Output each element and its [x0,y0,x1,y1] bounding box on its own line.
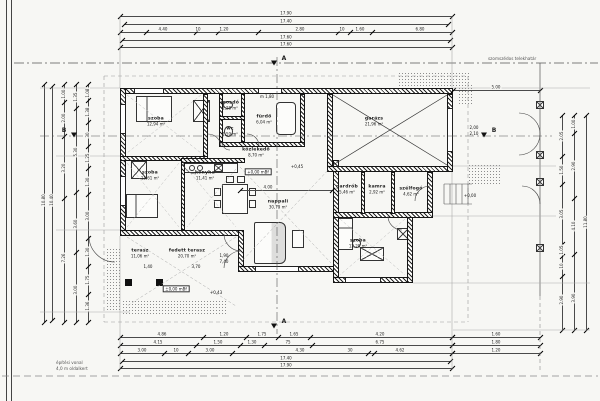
dimension-value: 1.75 [257,333,268,337]
door-swing-arc [519,134,540,155]
side-yard-text: 4,0 m oldalkert [56,366,88,372]
room-label-fedett-terasz: fedett terasz20,70 m² [169,250,205,259]
room-area: 1,28 m² [221,106,239,110]
section-marker-letter: B [492,128,497,134]
section-marker-triangle [271,61,277,66]
dimension-value: 1.00 [572,119,576,130]
door-swing-arc [519,113,540,134]
dimension-value: 1.20 [491,349,502,353]
dimension-value: 4.62 [395,349,406,353]
dimension-value: 10 [172,349,179,353]
level-note: 1,90 [220,254,229,258]
door-swing-arc [208,134,221,147]
dimension-value: 2.05 [560,131,564,142]
door-swing-arc [89,236,115,262]
room-area: 20,70 m² [169,254,205,258]
construction-line [127,237,236,306]
level-note: ±0,00 mBf [163,285,190,292]
section-marker-letter: A [282,56,287,62]
room-label-wc: wc1,59 m² [222,128,238,137]
dimension-value: 75 [284,341,291,345]
dimension-value: 1.75 [86,275,90,286]
dimension-value: 1.30 [86,247,90,258]
dimension-value: 4.30 [295,349,306,353]
building-line-label: építési vonal 4,0 m oldalkert [56,360,88,373]
dimension-value: 11.80 [584,215,588,228]
dimension-value: 3.20 [62,163,66,174]
dimension-value: 1.08 [86,88,90,99]
dimension-value: 3.00 [86,211,90,222]
section-marker-letter: B [62,128,67,134]
section-marker-letter: A [282,319,287,325]
room-area: 30,79 m² [268,205,289,209]
room-label-garázs: garázs21,96 m² [365,118,383,127]
dimension-value: 3.00 [74,285,78,296]
site-boundary-label: szomszédos telekhatár [488,56,536,62]
level-note: +0,45 [291,165,303,169]
section-marker-triangle [71,133,77,138]
dimension-value: 4.10 [572,221,576,232]
level-note: 2,10 [470,132,479,136]
dimension-value: 17.90 [279,12,292,16]
dimension-value: 17.90 [279,364,292,368]
room-area: 12,28 m² [349,244,367,248]
level-note: +0,00 [464,194,476,198]
level-note: +0,00 mBf [245,168,272,175]
room-label-szoba: szoba12,94 m² [147,118,165,127]
dimension-value: 17.40 [279,357,292,361]
dimension-value: 4.15 [153,341,164,345]
room-area: 1,59 m² [222,132,238,136]
room-area: 8,70 m² [242,153,270,157]
room-label-nappali: nappali30,79 m² [268,201,289,210]
dimension-value: 1.30 [86,177,90,188]
door-swing-arc [224,234,241,251]
room-label-szoba: szoba13,61 m² [141,172,159,181]
dimension-value: 3.90 [572,293,576,304]
dimension-value: 6.80 [415,28,426,32]
section-marker-triangle [481,133,487,138]
dimension-value: 1.25 [86,153,90,164]
room-label-kamra: kamra2,92 m² [368,186,385,195]
level-note: 1,40 [144,265,153,269]
room-area: 4,62 m² [399,192,422,196]
dimension-value: 10.80 [42,193,46,206]
room-label-terasz: terasz11,06 m² [131,250,149,259]
room-area: 21,96 m² [365,122,383,126]
room-label-konyha: konyha11,41 m² [195,172,215,181]
dimension-value: 5.00 [491,86,502,90]
room-area: 2,92 m² [368,190,385,194]
dimension-value: 2.00 [62,113,66,124]
room-area: 11,06 m² [131,254,149,258]
door-swing-arc [388,216,402,230]
drawing-sheet: szomszédos telekhatár építési vonal 4,0 … [0,0,600,401]
dimension-value: 1.05 [560,245,564,256]
level-note: 7,40 [220,260,229,264]
dimension-value: 5.30 [74,147,78,158]
room-area: 12,94 m² [147,122,165,126]
door-swing-arc [222,142,230,150]
room-label-gardrób: gardrób5,46 m² [336,186,358,195]
level-note: 3,70 [192,265,201,269]
dimension-value: 2.90 [560,295,564,306]
dimension-value: 10 [560,262,564,269]
room-label-közlekedő: közlekedő8,70 m² [242,149,270,158]
dimension-value: 1.36 [86,301,90,312]
dimension-value: 3.00 [205,349,216,353]
dimension-value: 1.30 [247,341,258,345]
dimension-value: 1.60 [355,28,366,32]
dimension-value: 4.20 [375,333,386,337]
dimension-value: 17.60 [279,36,292,40]
dimension-value: 1.35 [74,92,78,103]
construction-line [127,237,236,306]
dimension-value: 1.80 [491,341,502,345]
room-label-mosdó: mosdó1,28 m² [221,102,239,111]
level-note: m 1,80 [260,95,274,99]
dimension-value: 4.00 [263,186,274,190]
section-marker-triangle [271,324,277,329]
dimension-value: 30 [86,131,90,138]
dimension-value: 1.50 [213,341,224,345]
dimension-value: 1.65 [289,333,300,337]
dimension-value: 1.20 [219,28,230,32]
room-area: 13,61 m² [141,176,159,180]
dimension-value: 17.60 [279,43,292,47]
dimension-value: 6.75 [375,341,386,345]
dimension-value: 3.60 [74,219,78,230]
dimension-value: 4.86 [157,333,168,337]
dimension-value: 7.26 [62,253,66,264]
dimension-value: 2.80 [295,28,306,32]
dimension-value: 4.40 [158,28,169,32]
dimension-value: 1.20 [219,333,230,337]
dimension-value: 10 [194,28,201,32]
room-label-fürdő: fürdő6,04 m² [256,116,272,125]
dimension-value: 3.00 [137,349,148,353]
dimension-value: 10.40 [50,193,54,206]
door-swing-arc [522,186,540,204]
dimension-value: 2.90 [572,161,576,172]
dimension-value: 30 [346,349,353,353]
dimension-value: 17.40 [279,20,292,24]
level-note: +0,43 [210,291,222,295]
room-area: 11,41 m² [195,176,215,180]
dimension-value: 1.50 [560,165,564,176]
room-label-szélfogó: szélfogó4,62 m² [399,188,422,197]
dimension-value: 1.38 [86,107,90,118]
level-note: 2,00 [470,126,479,130]
dimension-value: 1.60 [491,333,502,337]
dimension-value: 10 [338,28,345,32]
room-area: 5,46 m² [336,190,358,194]
room-label-szoba: szoba12,28 m² [349,240,367,249]
dimension-value: 1.00 [62,89,66,100]
room-area: 6,04 m² [256,120,272,124]
dimension-value: 3.05 [560,209,564,220]
